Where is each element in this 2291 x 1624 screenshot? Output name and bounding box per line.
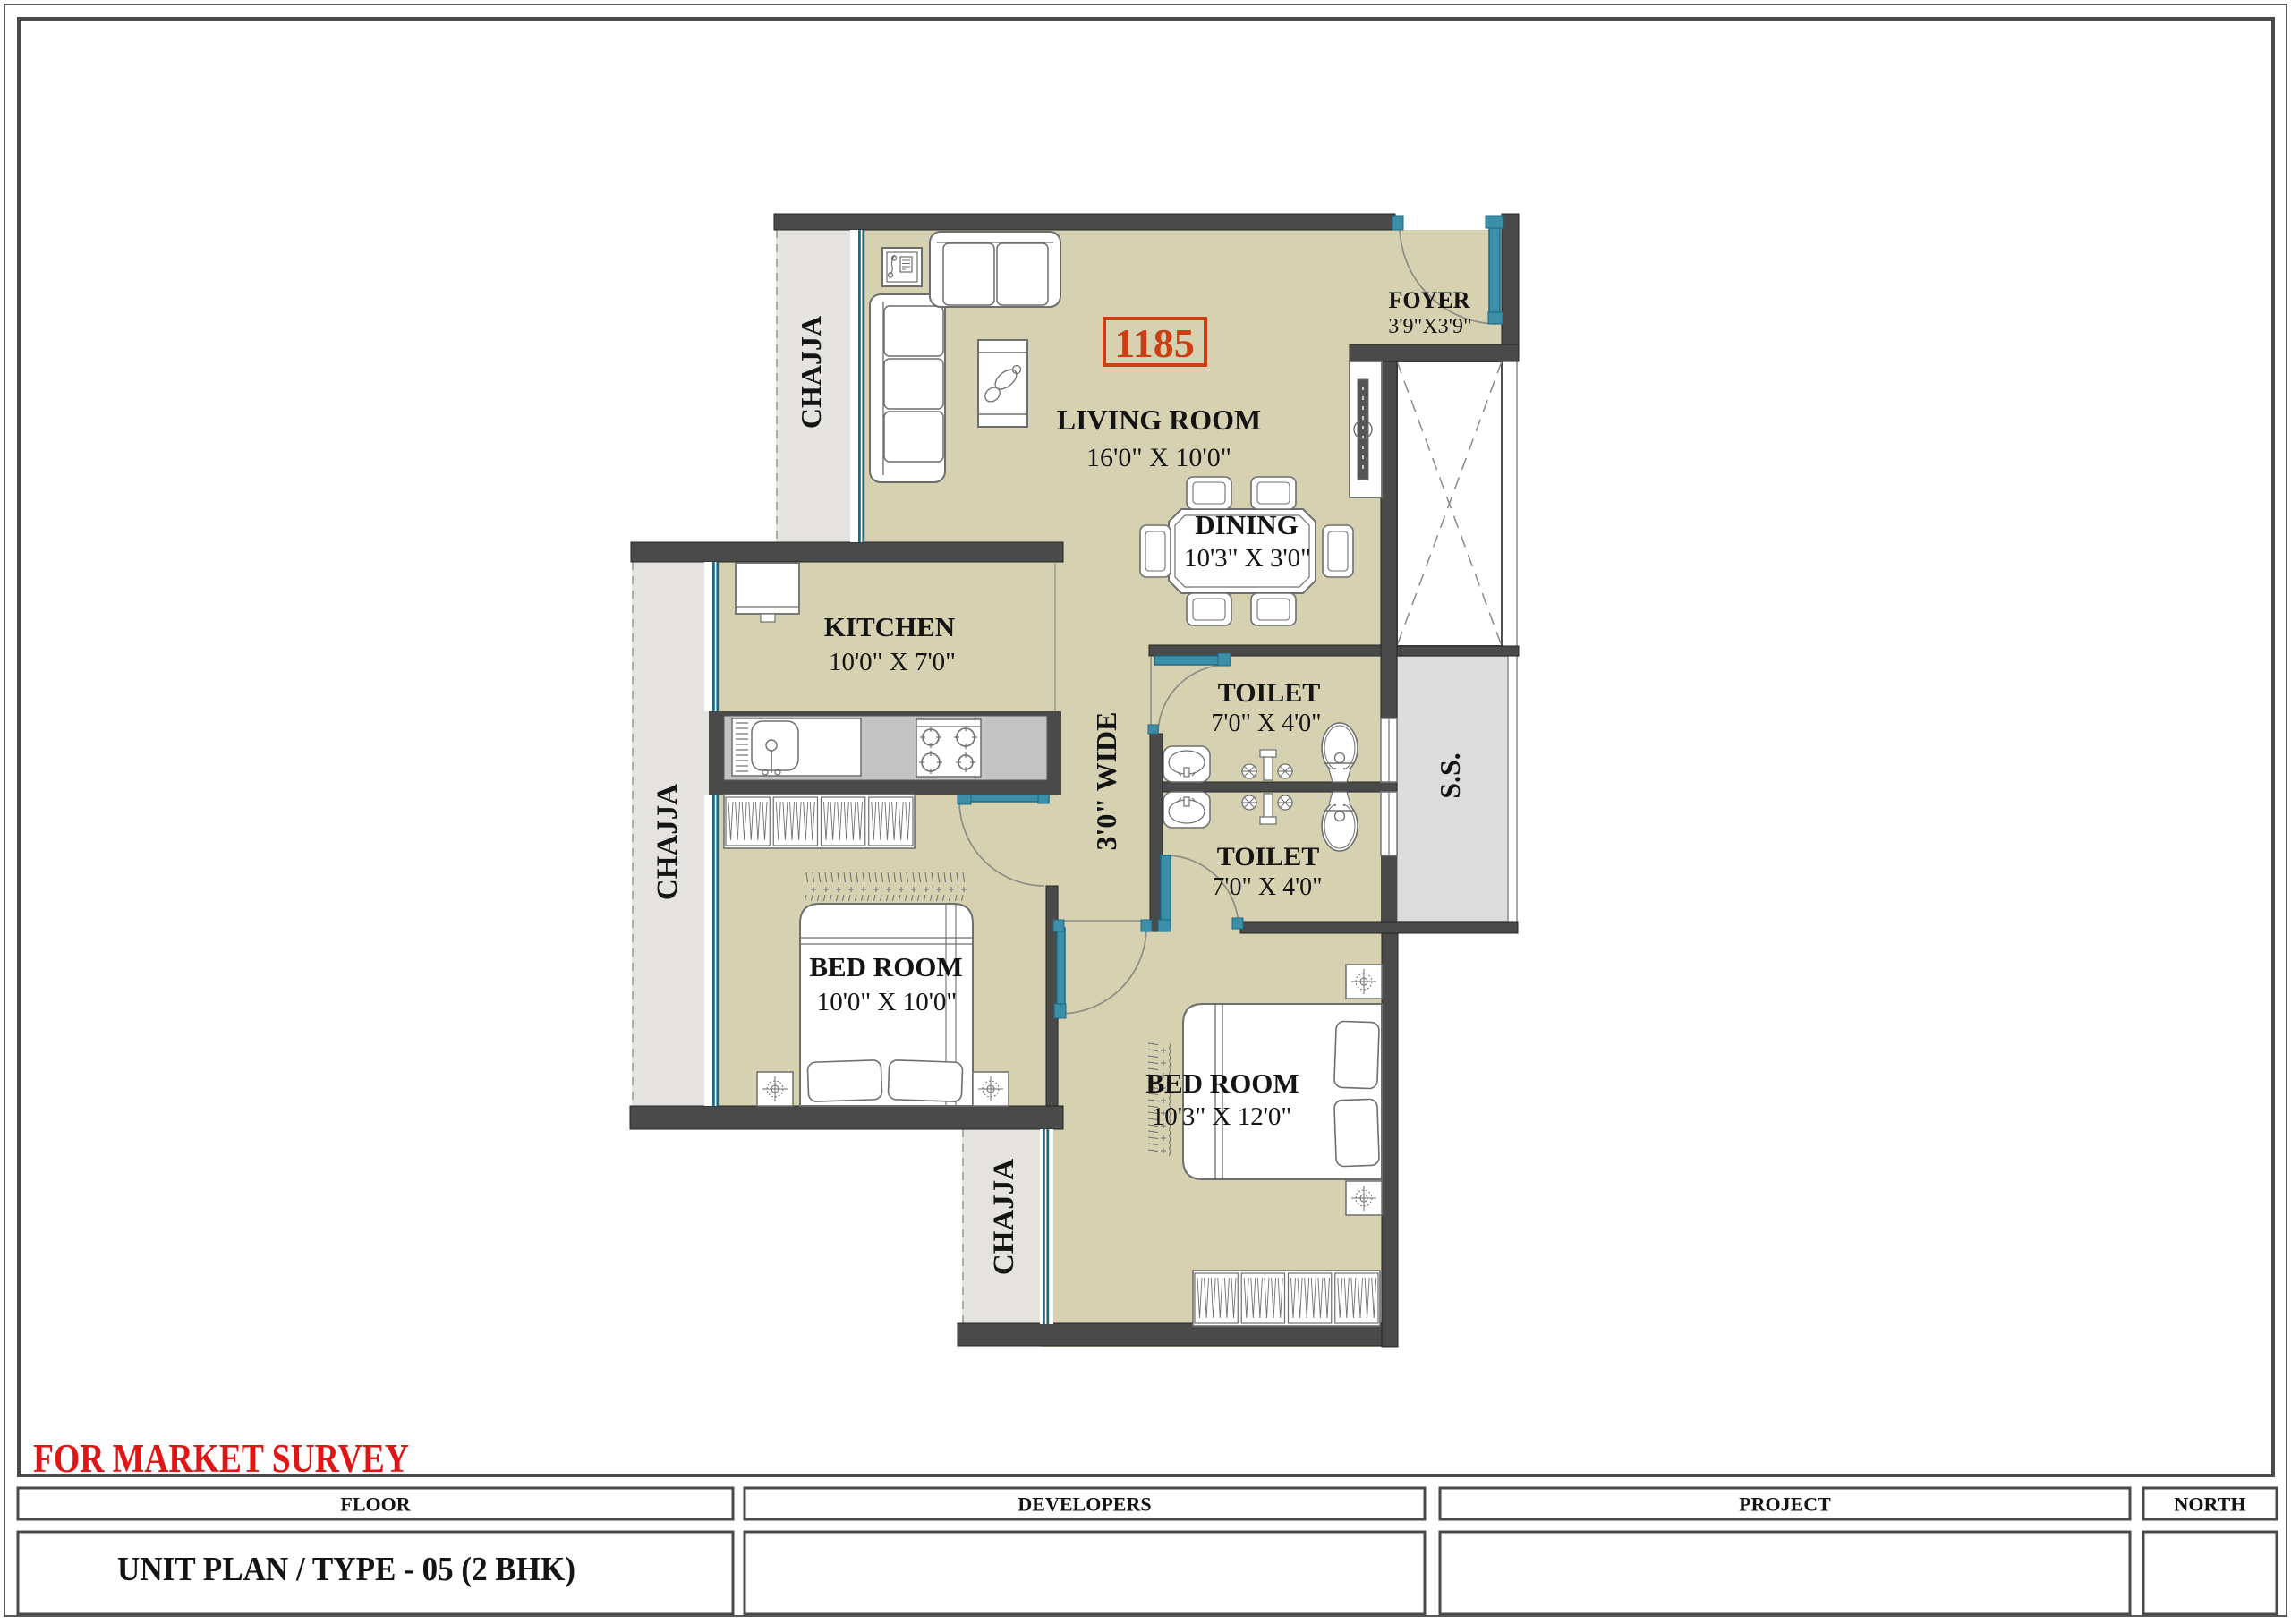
svg-text:KITCHEN: KITCHEN <box>824 611 955 642</box>
svg-text:FOYER: FOYER <box>1389 287 1470 313</box>
svg-text:3'9"X3'9": 3'9"X3'9" <box>1388 315 1472 338</box>
svg-text:DEVELOPERS: DEVELOPERS <box>1018 1493 1151 1516</box>
svg-text:FLOOR: FLOOR <box>340 1493 411 1516</box>
svg-text:1185: 1185 <box>1114 320 1194 366</box>
svg-text:7'0" X 4'0": 7'0" X 4'0" <box>1211 710 1321 737</box>
svg-text:TOILET: TOILET <box>1218 678 1321 708</box>
svg-text:CHAJJA: CHAJJA <box>652 784 684 900</box>
svg-text:BED ROOM: BED ROOM <box>1145 1067 1299 1099</box>
svg-text:10'0" X 7'0": 10'0" X 7'0" <box>829 648 956 676</box>
svg-text:10'0" X 10'0": 10'0" X 10'0" <box>817 988 958 1016</box>
svg-text:10'3" X 12'0": 10'3" X 12'0" <box>1152 1102 1292 1131</box>
svg-text:7'0" X 4'0": 7'0" X 4'0" <box>1212 873 1322 901</box>
svg-text:CHAJJA: CHAJJA <box>988 1159 1020 1275</box>
svg-text:UNIT PLAN / TYPE - 05 (2 BHK): UNIT PLAN / TYPE - 05 (2 BHK) <box>117 1551 575 1588</box>
svg-text:10'3" X 3'0": 10'3" X 3'0" <box>1184 544 1311 573</box>
svg-text:16'0" X 10'0": 16'0" X 10'0" <box>1086 443 1231 472</box>
svg-text:CHAJJA: CHAJJA <box>795 316 827 429</box>
svg-text:3'0" WIDE: 3'0" WIDE <box>1090 712 1122 851</box>
svg-text:S.S.: S.S. <box>1434 752 1466 799</box>
svg-text:TOILET: TOILET <box>1217 842 1320 872</box>
svg-text:FOR MARKET SURVEY: FOR MARKET SURVEY <box>33 1436 409 1481</box>
svg-text:NORTH: NORTH <box>2175 1493 2246 1516</box>
svg-text:DINING: DINING <box>1195 509 1298 540</box>
svg-text:LIVING ROOM: LIVING ROOM <box>1057 404 1261 436</box>
svg-text:BED ROOM: BED ROOM <box>809 951 962 982</box>
svg-text:PROJECT: PROJECT <box>1739 1493 1831 1516</box>
